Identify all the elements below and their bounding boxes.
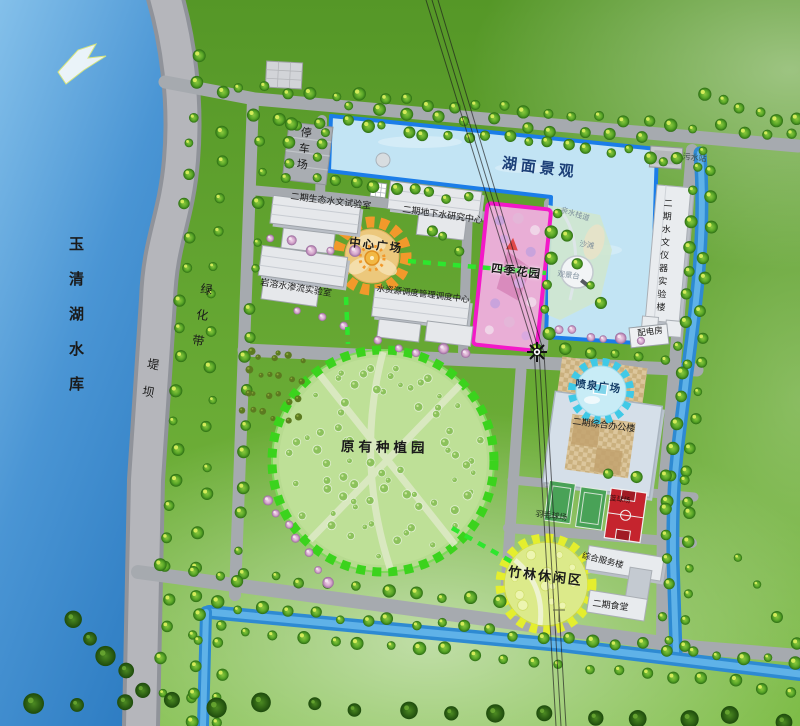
label-beach: 沙滩	[579, 240, 595, 250]
label-reservoir: 玉清湖水库	[68, 236, 83, 411]
transmission-tower-icon	[527, 342, 547, 362]
lake-islet	[376, 153, 390, 167]
site-plan-drawing	[0, 0, 800, 726]
label-plantation: 原有种植园	[341, 441, 429, 456]
site-plan: 玉清湖水库 堤坝 绿化带 停车场 湖面景观 亲水栈道 沙滩 观景台 污水站 二期…	[0, 0, 800, 726]
plantation-circle	[272, 350, 494, 572]
gate-building	[265, 61, 302, 89]
